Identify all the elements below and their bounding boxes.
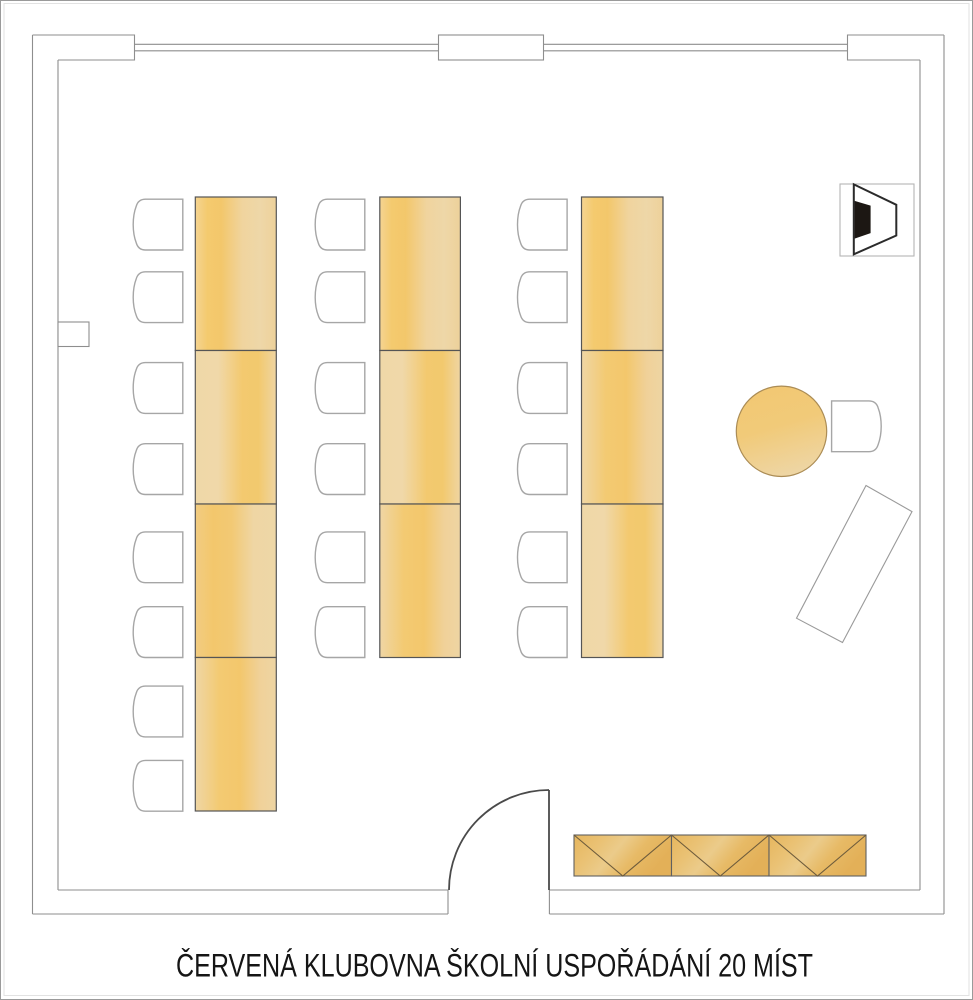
svg-text:ČERVENÁ KLUBOVNA ŠKOLNÍ USPOŘÁ: ČERVENÁ KLUBOVNA ŠKOLNÍ USPOŘÁDÁNÍ 20 MÍ… xyxy=(176,947,813,984)
